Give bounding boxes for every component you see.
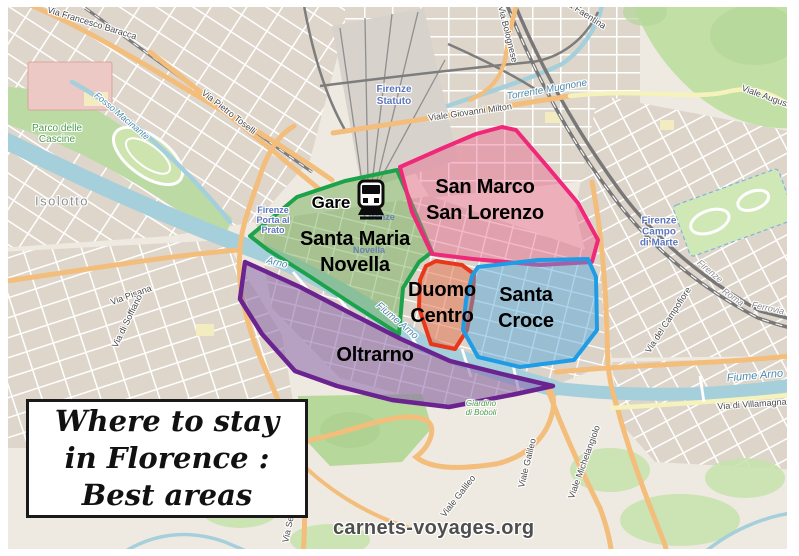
- title-line: in Florence :: [29, 440, 305, 477]
- region-polygon-santa-croce: [463, 259, 597, 367]
- map-container: Via Francesco Baracca Via Pietro Toselli…: [0, 0, 799, 556]
- title-line: Where to stay: [29, 403, 305, 440]
- frame-left: [0, 0, 8, 556]
- frame-bottom: [0, 549, 799, 556]
- florence-map-screenshot: Via Francesco Baracca Via Pietro Toselli…: [0, 0, 799, 556]
- frame-top: [0, 0, 799, 7]
- title-line: Best areas: [29, 477, 305, 514]
- watermark: carnets-voyages.org: [333, 517, 534, 540]
- train-icon: [354, 179, 388, 222]
- frame-right: [787, 0, 799, 556]
- title-box: Where to stay in Florence : Best areas: [26, 399, 308, 518]
